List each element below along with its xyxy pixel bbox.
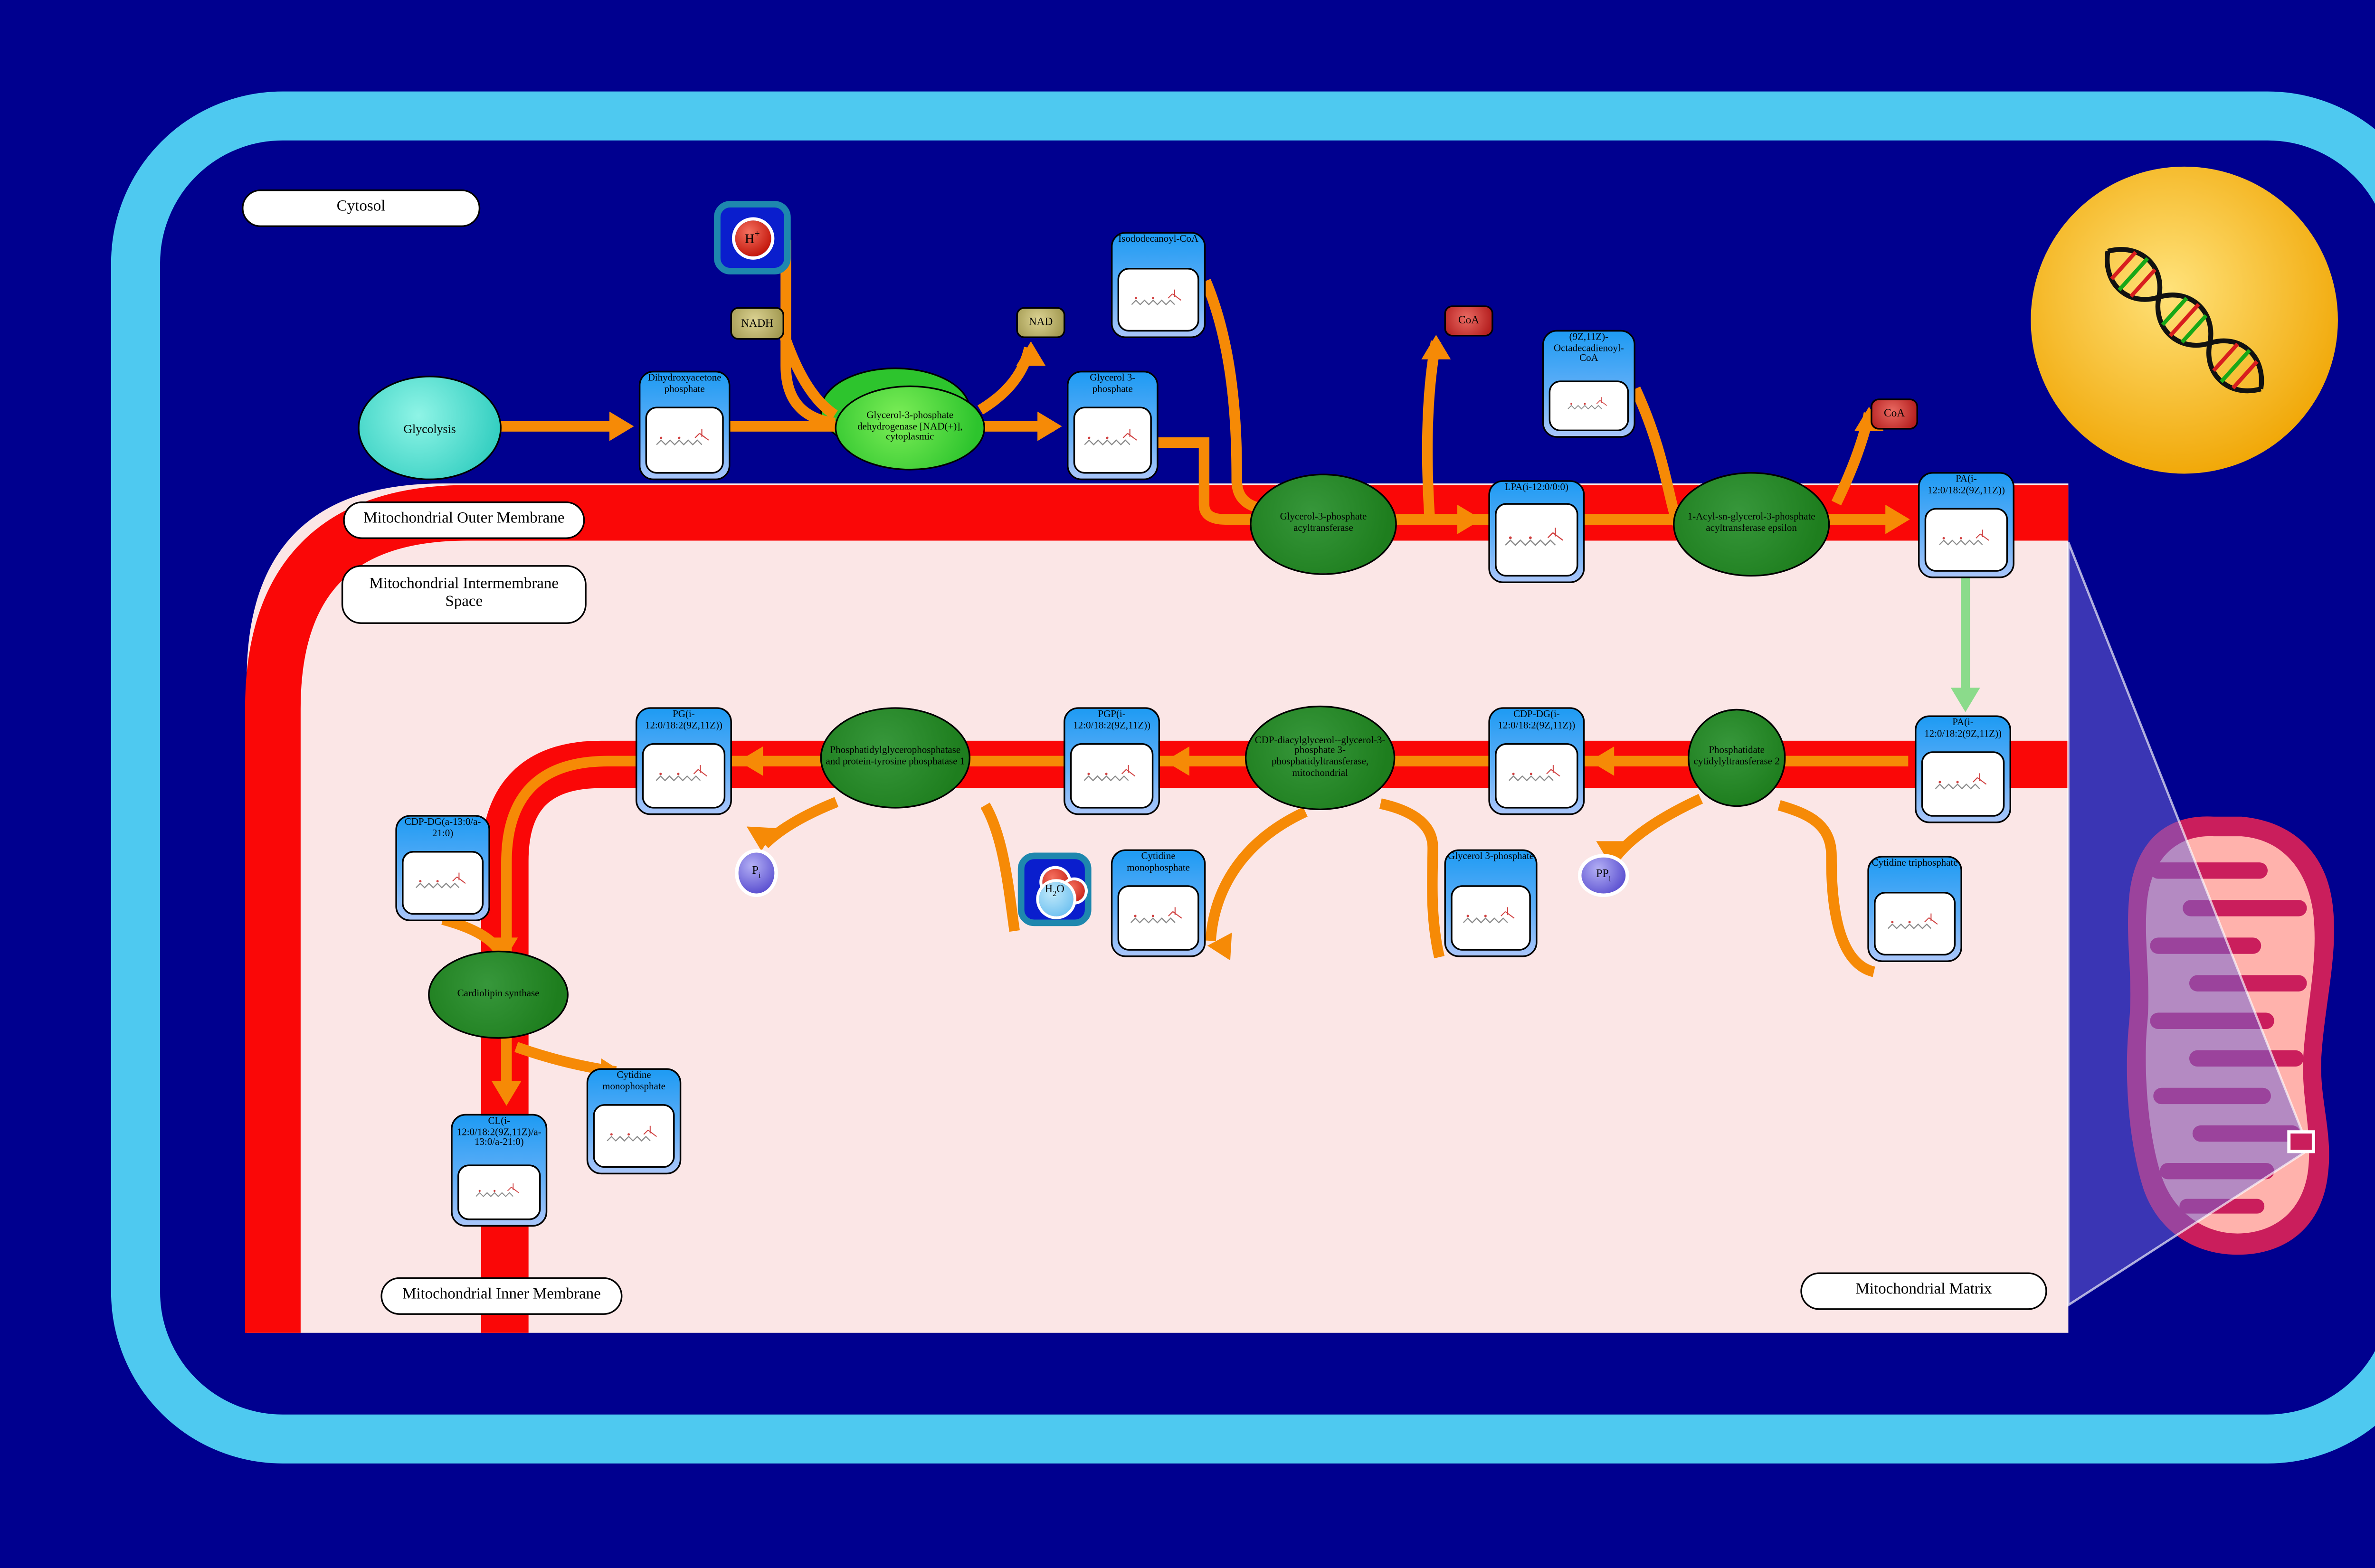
metabolite-isododecanoyl-coa[interactable]: Isododecanoyl-CoA — [1111, 232, 1206, 338]
metabolite-cmp-inner[interactable]: Cytidine monophosphate — [587, 1068, 681, 1174]
metabolite-cmp-matrix[interactable]: Cytidine monophosphate — [1111, 850, 1206, 957]
label-matrix: Mitochondrial Matrix — [1800, 1272, 2047, 1310]
cofactor-coa-right[interactable]: CoA — [1871, 398, 1918, 429]
structure-image — [1122, 280, 1195, 319]
metabolite-octadecadienoyl-coa[interactable]: (9Z,11Z)-Octadecadienoyl-CoA — [1542, 330, 1635, 438]
structure-image — [1075, 756, 1149, 796]
cofactor-ppi[interactable]: PPi — [1581, 858, 1625, 894]
dna-helix-icon — [2094, 236, 2275, 405]
metabolite-dhap[interactable]: Dihydroxyacetone phosphate — [639, 371, 731, 480]
process-glycolysis[interactable]: Glycolysis — [358, 376, 502, 480]
metabolite-cdp-dg-a[interactable]: CDP-DG(a-13:0/a-21:0) — [395, 815, 490, 921]
metabolite-pg[interactable]: PG(i-12:0/18:2(9Z,11Z)) — [636, 707, 732, 815]
structure-image — [1929, 520, 2003, 559]
cofactor-nad[interactable]: NAD — [1016, 307, 1065, 338]
pathway-canvas: Cytosol Mitochondrial Outer Membrane Mit… — [0, 0, 2375, 1568]
metabolite-cdp-dg[interactable]: CDP-DG(i-12:0/18:2(9Z,11Z)) — [1488, 707, 1585, 815]
structure-image — [462, 1176, 536, 1209]
structure-image — [1078, 420, 1147, 461]
label-inner-membrane: Mitochondrial Inner Membrane — [380, 1277, 622, 1315]
metabolite-cardiolipin[interactable]: CL(i-12:0/18:2(9Z,11Z)/a-13:0/a-21:0) — [451, 1114, 547, 1227]
structure-image — [598, 1117, 670, 1155]
mitochondrion-illustration — [2127, 816, 2334, 1255]
metabolite-pgp[interactable]: PGP(i-12:0/18:2(9Z,11Z)) — [1064, 707, 1160, 815]
structure-image — [407, 863, 479, 902]
enzyme-pgs1[interactable]: CDP-diacylglycerol--glycerol-3-phosphate… — [1245, 706, 1395, 810]
zoom-projection-cone — [2068, 542, 2303, 1305]
structure-image — [1500, 756, 1573, 796]
structure-image — [1926, 764, 2000, 804]
structure-image — [1500, 517, 1573, 562]
reaction-arrows — [443, 240, 1908, 1095]
structure-image — [1455, 898, 1526, 938]
metabolite-ctp[interactable]: Cytidine triphosphate — [1867, 856, 1962, 962]
cofactor-coa-upper[interactable]: CoA — [1444, 305, 1493, 336]
metabolite-g3p-matrix[interactable]: Glycerol 3-phosphate — [1444, 850, 1538, 957]
enzyme-gpat[interactable]: Glycerol-3-phosphate acyltransferase — [1250, 473, 1397, 575]
enzyme-cds2[interactable]: Phosphatidate cytidylyltransferase 2 — [1688, 709, 1786, 807]
label-cytosol: Cytosol — [242, 189, 480, 227]
cofactor-pi[interactable]: Pi — [739, 852, 775, 893]
cofactor-h2o[interactable]: H2O — [1018, 852, 1092, 926]
cofactor-nadh[interactable]: NADH — [730, 307, 784, 340]
zoom-target-marker — [2289, 1132, 2314, 1152]
metabolite-g3p-cytosol[interactable]: Glycerol 3-phosphate — [1067, 371, 1159, 480]
cofactor-h-plus[interactable]: H+ — [714, 201, 791, 274]
transport-arrow-green — [1951, 576, 1980, 712]
enzyme-agpat-epsilon[interactable]: 1-Acyl-sn-glycerol-3-phosphate acyltrans… — [1673, 472, 1830, 576]
label-intermembrane-space: Mitochondrial Intermembrane Space — [342, 565, 587, 624]
structure-image — [1122, 898, 1195, 938]
structure-image — [1554, 391, 1624, 421]
metabolite-pa-inner[interactable]: PA(i-12:0/18:2(9Z,11Z)) — [1915, 716, 2011, 823]
enzyme-ptpmt1[interactable]: Phosphatidylglycerophosphatase and prote… — [820, 707, 970, 808]
structure-image — [1879, 904, 1951, 943]
label-outer-membrane: Mitochondrial Outer Membrane — [343, 501, 585, 539]
metabolite-pa-outer[interactable]: PA(i-12:0/18:2(9Z,11Z)) — [1918, 472, 2014, 578]
structure-image — [650, 420, 719, 461]
metabolite-lpa[interactable]: LPA(i-12:0/0:0) — [1488, 480, 1585, 583]
structure-image — [647, 756, 721, 796]
nucleus — [2031, 167, 2338, 474]
enzyme-gpd1[interactable]: Glycerol-3-phosphate dehydrogenase [NAD(… — [835, 386, 985, 471]
enzyme-cardiolipin-synthase[interactable]: Cardiolipin synthase — [428, 951, 569, 1039]
inner-membrane-band — [505, 765, 2069, 1333]
